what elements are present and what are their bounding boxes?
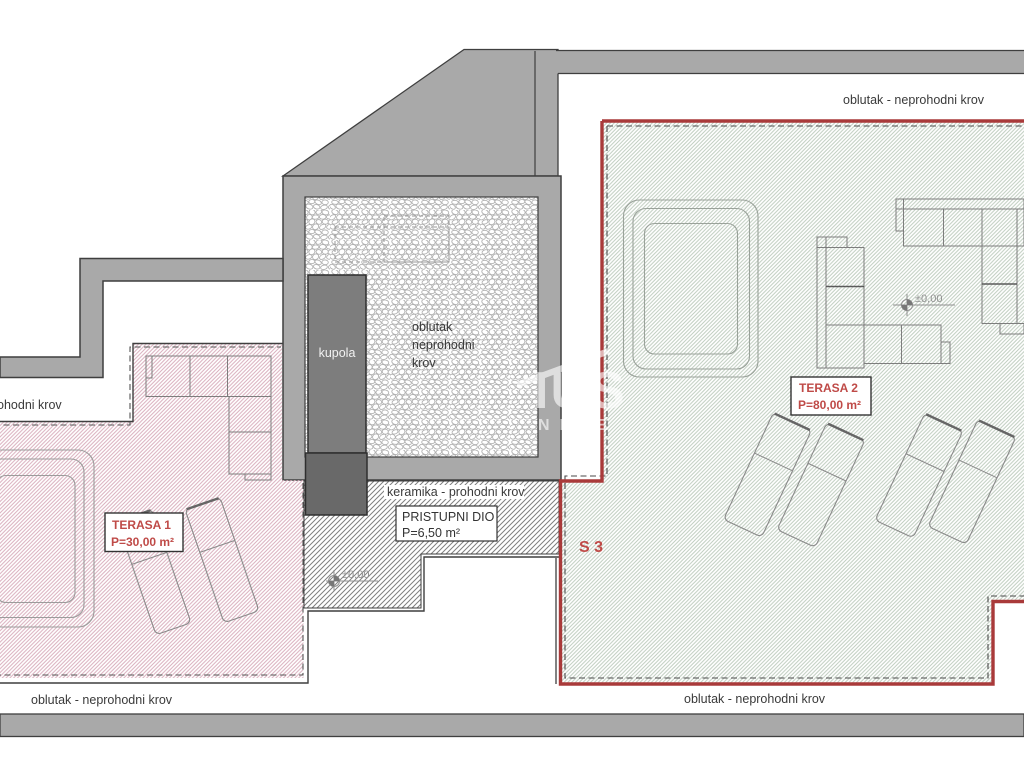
svg-text:kupola: kupola [319,346,356,360]
svg-text:TERASA 1: TERASA 1 [112,518,171,532]
svg-text:TERASA 2: TERASA 2 [799,381,858,395]
svg-text:P=80,00 m²: P=80,00 m² [798,398,861,412]
svg-text:neprohodni: neprohodni [412,338,475,352]
svg-text:oblutak - neprohodni krov: oblutak - neprohodni krov [31,693,173,707]
svg-text:keramika - prohodni krov: keramika - prohodni krov [387,485,525,499]
svg-text:oblutak - neprohodni krov: oblutak - neprohodni krov [684,692,826,706]
svg-text:neprohodni krov: neprohodni krov [0,398,62,412]
svg-text:±0,00: ±0,00 [342,569,369,581]
svg-text:P=30,00 m²: P=30,00 m² [111,535,174,549]
svg-text:IUS: IUS [534,362,627,420]
svg-text:krov: krov [412,356,436,370]
svg-text:P=6,50 m²: P=6,50 m² [402,526,460,540]
svg-text:oblutak: oblutak [412,320,453,334]
svg-text:NINE: NINE [538,417,616,434]
svg-text:±0,00: ±0,00 [915,293,942,305]
svg-text:oblutak - neprohodni krov: oblutak - neprohodni krov [843,93,985,107]
svg-text:S 3: S 3 [579,539,603,556]
svg-text:PRISTUPNI DIO: PRISTUPNI DIO [402,510,495,524]
